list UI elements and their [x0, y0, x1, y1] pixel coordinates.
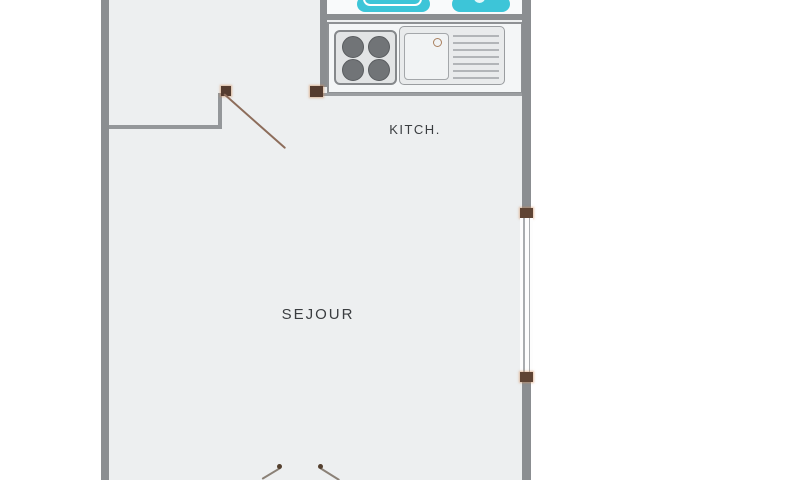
drainer-line	[453, 56, 499, 58]
right-exterior-wall-lower	[522, 382, 531, 480]
door-frame-mark	[310, 86, 323, 97]
room-label-kitchen: KITCH.	[373, 122, 457, 137]
bathtub-rim-icon	[363, 0, 422, 6]
drainer-line	[453, 49, 499, 51]
partition-wall-horizontal	[109, 125, 222, 129]
burner-icon	[342, 59, 364, 81]
entry-door-tip-mark	[277, 464, 282, 469]
drainer-line	[453, 70, 499, 72]
drainer-line	[453, 77, 499, 79]
cooktop-icon	[334, 30, 397, 85]
bathtub-icon	[357, 0, 430, 12]
right-exterior-wall-upper	[522, 0, 531, 208]
drainer-line	[453, 42, 499, 44]
window-pane-line	[529, 218, 531, 372]
counter-front-line	[322, 93, 522, 96]
burner-icon	[368, 36, 390, 58]
entry-door-tip-mark	[318, 464, 323, 469]
washbasin-icon	[452, 0, 510, 12]
drainer-line	[453, 63, 499, 65]
partition-wall-vertical	[218, 93, 222, 129]
drainer-line	[453, 35, 499, 37]
window	[520, 208, 533, 382]
sink-drain-icon	[433, 38, 442, 47]
burner-icon	[342, 36, 364, 58]
washbasin-drain-icon	[474, 0, 485, 3]
burner-icon	[368, 59, 390, 81]
window-sill-bottom	[520, 372, 533, 382]
sink-basin-icon	[404, 33, 449, 80]
floor-plan: KITCH. SEJOUR	[0, 0, 800, 480]
window-glazing	[520, 218, 533, 372]
window-pane-line	[523, 218, 525, 372]
kitchen-top-wall	[320, 14, 522, 20]
window-sill-top	[520, 208, 533, 218]
left-exterior-wall	[101, 0, 109, 480]
sink-icon	[399, 26, 505, 85]
room-label-sejour: SEJOUR	[256, 306, 380, 323]
